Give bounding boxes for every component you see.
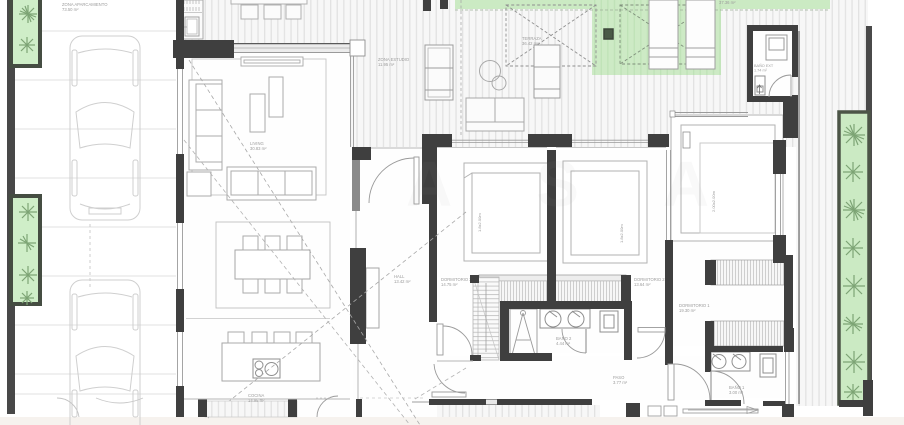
svg-text:11.95 m²: 11.95 m² xyxy=(378,62,395,67)
svg-text:13.42 m²: 13.42 m² xyxy=(394,279,411,284)
svg-text:13.64 m²: 13.64 m² xyxy=(634,282,651,287)
svg-text:14.75 m²: 14.75 m² xyxy=(441,282,458,287)
svg-text:3.77 m²: 3.77 m² xyxy=(613,380,628,385)
svg-text:19.30 m²: 19.30 m² xyxy=(679,308,696,313)
svg-text:30.83 m²: 30.83 m² xyxy=(250,146,267,151)
svg-text:73.50 m²: 73.50 m² xyxy=(62,7,79,12)
svg-text:ASA: ASA xyxy=(406,148,793,220)
svg-text:37.36 m²: 37.36 m² xyxy=(719,0,736,5)
svg-text:BAÑO EXT: BAÑO EXT xyxy=(754,63,774,68)
svg-text:1.74 m²: 1.74 m² xyxy=(754,69,768,73)
svg-text:1.8x2.00m: 1.8x2.00m xyxy=(619,224,624,243)
